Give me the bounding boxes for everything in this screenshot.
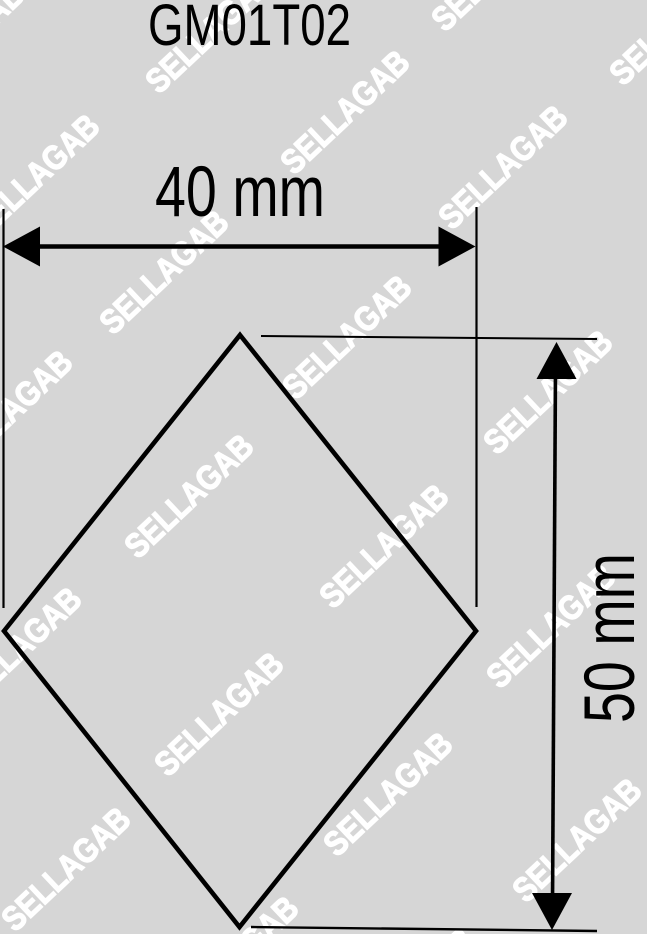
svg-text:40 mm: 40 mm bbox=[155, 153, 325, 232]
svg-text:50 mm: 50 mm bbox=[571, 553, 647, 723]
svg-text:GM01T02: GM01T02 bbox=[148, 0, 351, 58]
